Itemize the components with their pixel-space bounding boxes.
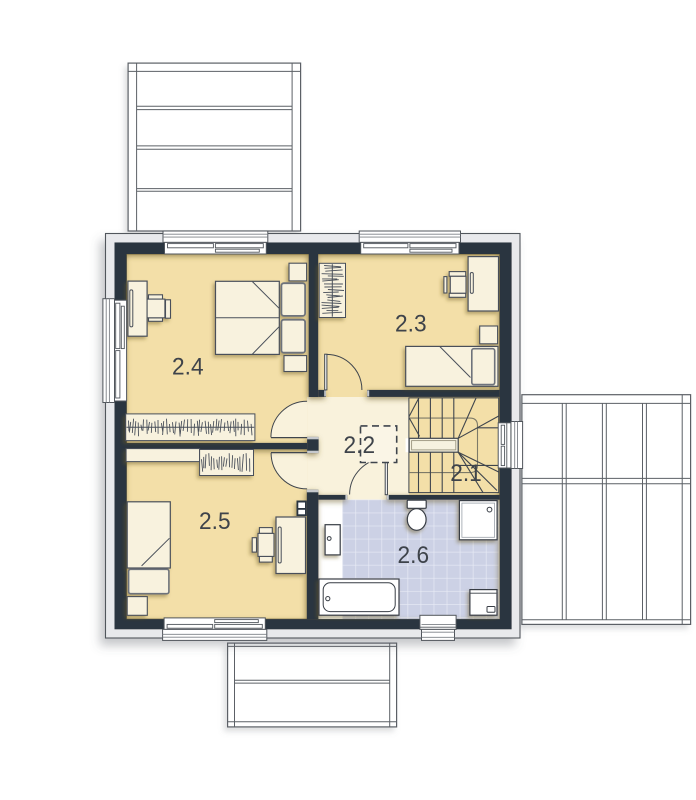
svg-text:2.1: 2.1: [450, 460, 482, 487]
svg-text:2.5: 2.5: [199, 508, 231, 535]
svg-text:2.2: 2.2: [344, 432, 376, 459]
svg-text:2.4: 2.4: [172, 354, 204, 381]
svg-text:2.6: 2.6: [398, 542, 430, 569]
svg-text:2.3: 2.3: [395, 311, 427, 338]
